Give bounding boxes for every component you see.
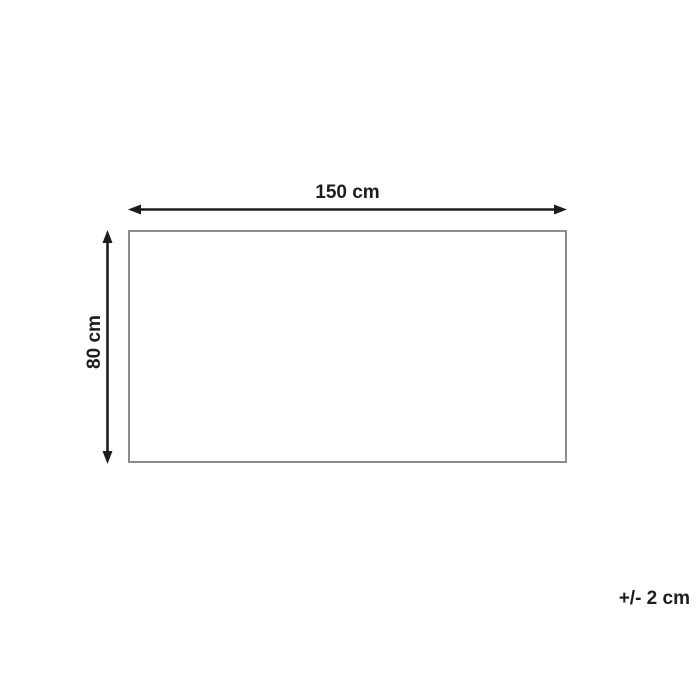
horizontal-dimension-arrow-icon — [128, 204, 567, 215]
tolerance-label: +/- 2 cm — [560, 589, 690, 609]
product-outline-rectangle — [128, 230, 567, 463]
vertical-dimension-arrow-icon — [102, 230, 113, 464]
dimension-diagram: 150 cm 80 cm +/- 2 cm — [0, 0, 700, 700]
width-dimension-label: 150 cm — [128, 183, 567, 203]
